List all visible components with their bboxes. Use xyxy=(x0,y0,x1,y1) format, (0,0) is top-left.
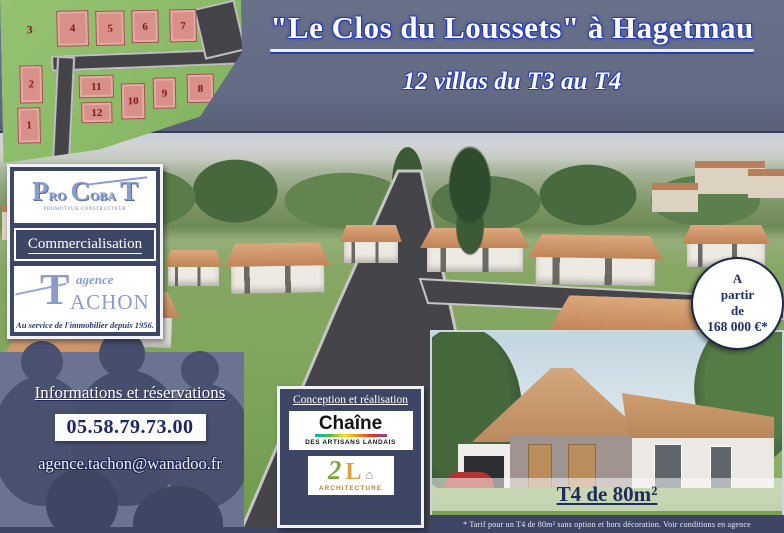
procobat-letter: RO xyxy=(48,189,66,203)
contact-block: Informations et réservations 05.58.79.73… xyxy=(2,383,258,474)
commercialisation-box: Commercialisation xyxy=(14,228,156,261)
villa-render xyxy=(225,242,331,294)
lot-10: 10 xyxy=(121,83,146,119)
lot-12: 12 xyxy=(81,102,112,124)
logo-column: PRO COBA T PROMOTEUR CONSTRUCTEUR Commer… xyxy=(7,164,163,339)
plan-road xyxy=(52,56,75,167)
lot-1: 1 xyxy=(17,107,41,143)
procobat-logo: PRO COBA T PROMOTEUR CONSTRUCTEUR xyxy=(14,171,156,223)
lot-5: 5 xyxy=(95,10,125,46)
page-title: "Le Clos du Loussets" à Hagetmau xyxy=(270,10,754,52)
tachon-agence: agence xyxy=(76,272,114,288)
procobat-subtitle: PROMOTEUR CONSTRUCTEUR xyxy=(14,207,156,212)
title-block: "Le Clos du Loussets" à Hagetmau 12 vill… xyxy=(244,10,780,96)
logo-2: 2 xyxy=(328,455,342,485)
logo-L: L xyxy=(345,459,361,485)
price-line: A xyxy=(733,271,742,287)
procobat-letter: P xyxy=(32,176,49,206)
house-icon: ⌂ xyxy=(365,467,373,482)
villa-render xyxy=(165,250,222,286)
architecture-2l-logo: 2 L ⌂ ARCHITECTURE xyxy=(308,456,394,495)
villa-render xyxy=(340,225,402,263)
lot-9: 9 xyxy=(153,77,177,108)
tachon-logo: T agence ACHON Au service de l'immobilie… xyxy=(14,266,156,332)
chaine-subtitle: DES ARTISANS LANDAIS xyxy=(289,439,413,446)
tall-tree xyxy=(430,137,510,257)
flyer-page: "Le Clos du Loussets" à Hagetmau 12 vill… xyxy=(0,0,784,533)
conception-label: Conception et réalisation xyxy=(293,394,408,406)
price-line: partir xyxy=(721,287,754,303)
lot-7: 7 xyxy=(169,9,197,43)
tachon-T: T xyxy=(40,268,69,312)
chaine-artisans-logo: Chaîne DES ARTISANS LANDAIS xyxy=(289,411,413,450)
tachon-tagline: Au service de l'immobilier depuis 1956. xyxy=(14,320,156,330)
commercialisation-label: Commercialisation xyxy=(28,236,142,254)
tachon-achon: ACHON xyxy=(70,290,150,315)
conception-box: Conception et réalisation Chaîne DES ART… xyxy=(277,386,424,528)
price-badge: A partir de 168 000 €* xyxy=(691,257,784,350)
info-reservations-label: Informations et réservations xyxy=(2,383,258,403)
t4-house-photo: T4 de 80m² xyxy=(430,330,784,517)
fineprint-text: * Tarif pour un T4 de 80m² sans option e… xyxy=(430,515,784,533)
page-subtitle: 12 villas du T3 au T4 xyxy=(244,68,780,96)
lot-3: 3 xyxy=(16,17,42,42)
rainbow-bar-icon xyxy=(315,434,387,437)
lot-6: 6 xyxy=(131,10,159,44)
architecture-label: ARCHITECTURE xyxy=(308,485,394,492)
lot-2: 2 xyxy=(19,65,43,103)
price-amount: 168 000 €* xyxy=(707,319,768,336)
email-address: agence.tachon@wanadoo.fr xyxy=(2,454,258,474)
lot-11: 11 xyxy=(79,75,114,99)
phone-number: 05.58.79.73.00 xyxy=(55,414,206,441)
price-line: de xyxy=(731,303,744,319)
lot-8: 8 xyxy=(187,74,215,104)
chaine-name: Chaîne xyxy=(289,414,413,433)
lot-4: 4 xyxy=(56,10,89,47)
t4-caption: T4 de 80m² xyxy=(557,482,658,507)
villa-render xyxy=(528,234,664,286)
caption-band: T4 de 80m² xyxy=(432,478,782,511)
